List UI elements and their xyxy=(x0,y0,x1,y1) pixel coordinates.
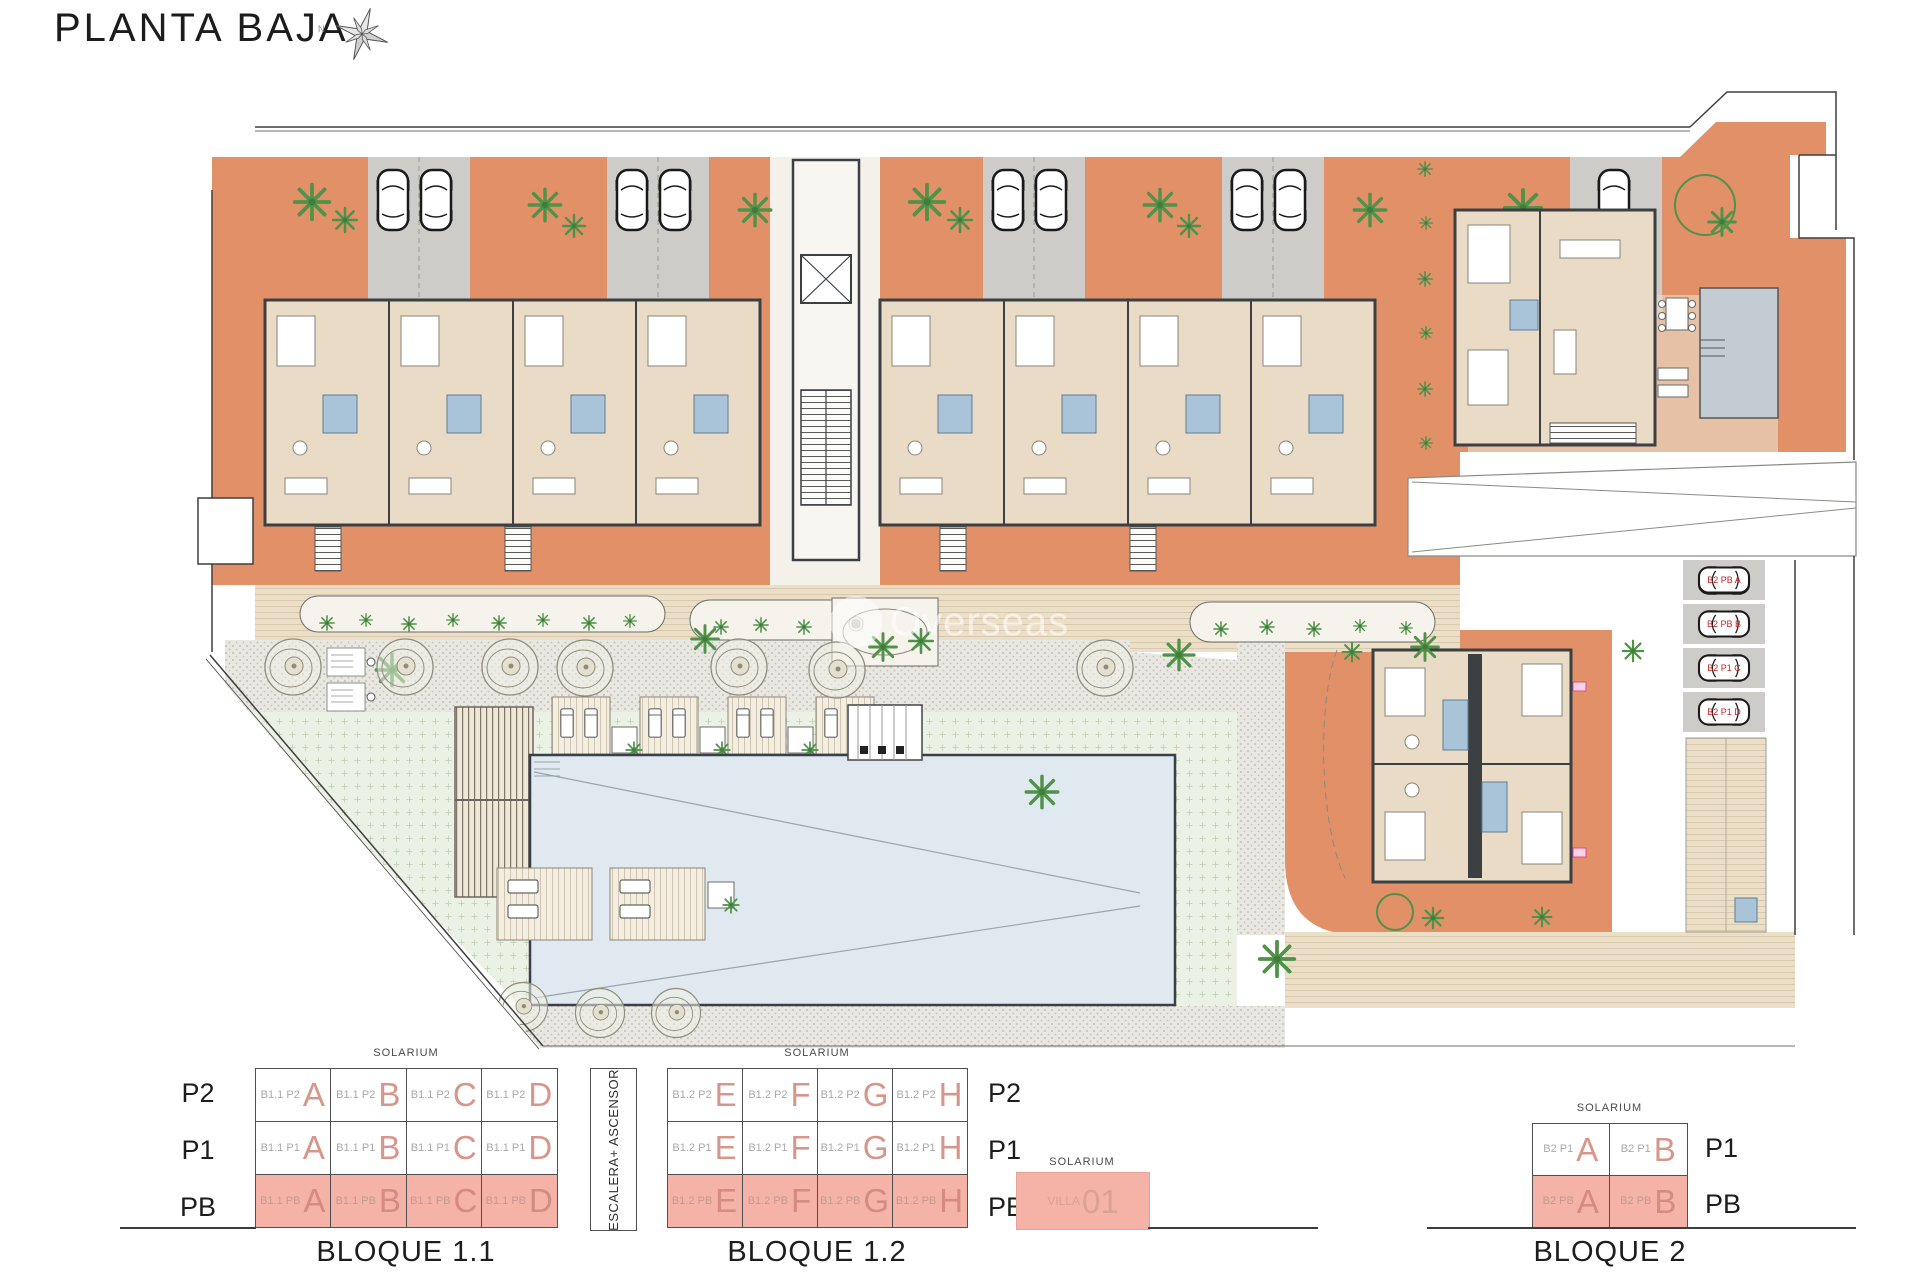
unit-letter: B xyxy=(378,1131,400,1164)
unit-letter: G xyxy=(863,1078,889,1111)
unit-cell-B1.1-PB-B: B1.1 PBB xyxy=(330,1174,407,1228)
unit-letter: H xyxy=(939,1184,963,1217)
ground-line-mid xyxy=(1148,1227,1318,1229)
unit-letter: E xyxy=(715,1131,737,1164)
unit-cell-B1.1-P2-C: B1.1 P2C xyxy=(406,1068,483,1122)
unit-cell-B1.1-PB-A: B1.1 PBA xyxy=(255,1174,332,1228)
unit-prefix: B1.1 PB xyxy=(260,1195,300,1207)
bloque-1-2-name: BLOQUE 1.2 xyxy=(667,1236,967,1269)
unit-prefix: B1.2 P2 xyxy=(821,1089,860,1101)
unit-prefix: B1.2 P1 xyxy=(672,1142,711,1154)
villa-number: 01 xyxy=(1082,1185,1119,1218)
unit-prefix: B1.2 PB xyxy=(896,1195,936,1207)
bloque-1-1-grid: B1.1 P2AB1.1 P2BB1.1 P2CB1.1 P2DB1.1 P1A… xyxy=(255,1068,557,1227)
bloque-1-2-grid: B1.2 P2EB1.2 P2FB1.2 P2GB1.2 P2HB1.2 P1E… xyxy=(667,1068,967,1227)
unit-letter: B xyxy=(378,1078,400,1111)
unit-cell-B1.2-P2-E: B1.2 P2E xyxy=(667,1068,743,1122)
svg-text:B2 P1 C: B2 P1 C xyxy=(1707,663,1741,673)
unit-letter: F xyxy=(791,1184,811,1217)
unit-letter: D xyxy=(529,1184,553,1217)
unit-cell-B1.2-P1-G: B1.2 P1G xyxy=(817,1121,893,1175)
unit-letter: G xyxy=(863,1131,889,1164)
unit-cell-B1.2-P1-H: B1.2 P1H xyxy=(892,1121,968,1175)
unit-letter: C xyxy=(454,1184,478,1217)
unit-letter: C xyxy=(453,1078,477,1111)
unit-letter: B xyxy=(379,1184,401,1217)
unit-letter: G xyxy=(863,1184,889,1217)
unit-cell-B1.1-P1-C: B1.1 P1C xyxy=(406,1121,483,1175)
bloque-2-grid: B2 P1AB2 P1BB2 PBAB2 PBB xyxy=(1532,1123,1687,1227)
unit-letter: C xyxy=(453,1131,477,1164)
unit-prefix: B1.2 PB xyxy=(820,1195,860,1207)
unit-cell-B1.2-PB-F: B1.2 PBF xyxy=(742,1174,818,1228)
floor-label-P2: P2 xyxy=(988,1078,1048,1109)
unit-cell-B1.1-PB-D: B1.1 PBD xyxy=(481,1174,558,1228)
svg-text:B2 PB B: B2 PB B xyxy=(1707,619,1741,629)
unit-prefix: B1.1 P1 xyxy=(336,1142,375,1154)
unit-prefix: B1.1 P1 xyxy=(261,1142,300,1154)
unit-letter: D xyxy=(528,1131,552,1164)
ground-line-right xyxy=(1427,1227,1856,1229)
compass-icon: N xyxy=(310,2,400,66)
bloque-2-name: BLOQUE 2 xyxy=(1490,1236,1730,1269)
stairs-elevator-box: ESCALERA+ ASCENSOR xyxy=(590,1068,637,1231)
unit-letter: B xyxy=(1654,1133,1676,1166)
unit-prefix: B1.2 P1 xyxy=(897,1142,936,1154)
unit-cell-B2-PB-A: B2 PBA xyxy=(1532,1175,1611,1228)
floor-label-P2: P2 xyxy=(168,1078,228,1109)
unit-cell-B1.1-P1-B: B1.1 P1B xyxy=(330,1121,407,1175)
unit-letter: H xyxy=(939,1131,963,1164)
unit-prefix: B1.1 PB xyxy=(486,1195,526,1207)
stair-elevator-core xyxy=(793,160,859,560)
unit-letter: A xyxy=(1577,1185,1599,1218)
unit-prefix: B1.1 P2 xyxy=(486,1089,525,1101)
bloque-1-1-name: BLOQUE 1.1 xyxy=(255,1236,557,1269)
unit-prefix: B1.2 PB xyxy=(672,1195,712,1207)
unit-prefix: B1.1 PB xyxy=(410,1195,450,1207)
unit-cell-B1.2-P1-E: B1.2 P1E xyxy=(667,1121,743,1175)
unit-prefix: B2 P1 xyxy=(1621,1143,1651,1155)
unit-cell-B1.2-PB-E: B1.2 PBE xyxy=(667,1174,743,1228)
unit-letter: A xyxy=(1576,1133,1598,1166)
unit-prefix: B1.2 PB xyxy=(748,1195,788,1207)
unit-cell-B1.2-P2-F: B1.2 P2F xyxy=(742,1068,818,1122)
unit-cell-B1.2-PB-G: B1.2 PBG xyxy=(817,1174,893,1228)
stairs-elevator-label: ESCALERA+ ASCENSOR xyxy=(606,1069,621,1231)
floor-labels-left: P2P1PB xyxy=(168,1078,228,1223)
villa-label: VILLA xyxy=(1047,1194,1080,1208)
unit-letter: H xyxy=(939,1078,963,1111)
unit-cell-B1.1-P2-B: B1.1 P2B xyxy=(330,1068,407,1122)
unit-cell-B1.2-P2-G: B1.2 P2G xyxy=(817,1068,893,1122)
site-plan: B2 PB A B2 PB B B2 P1 C B2 P1 D xyxy=(0,0,1920,1060)
driveway-ramp xyxy=(1408,462,1856,556)
page-title: PLANTA BAJA xyxy=(54,6,349,51)
solarium-label-bloque-1-2: SOLARIUM xyxy=(667,1047,967,1059)
unit-letter: E xyxy=(715,1078,737,1111)
unit-prefix: B2 PB xyxy=(1620,1195,1651,1207)
unit-prefix: B1.2 P1 xyxy=(748,1142,787,1154)
unit-letter: F xyxy=(790,1078,810,1111)
unit-cell-B1.2-PB-H: B1.2 PBH xyxy=(892,1174,968,1228)
unit-cell-B2-P1-B: B2 P1B xyxy=(1609,1123,1688,1176)
unit-cell-B1.2-P2-H: B1.2 P2H xyxy=(892,1068,968,1122)
unit-letter: A xyxy=(303,1184,325,1217)
unit-letter: A xyxy=(303,1078,325,1111)
unit-cell-B1.1-P1-A: B1.1 P1A xyxy=(255,1121,332,1175)
unit-prefix: B2 PB xyxy=(1543,1195,1574,1207)
solarium-label-bloque-2: SOLARIUM xyxy=(1532,1102,1687,1114)
unit-cell-B1.1-PB-C: B1.1 PBC xyxy=(406,1174,483,1228)
unit-prefix: B1.2 P2 xyxy=(748,1089,787,1101)
unit-cell-B2-PB-B: B2 PBB xyxy=(1609,1175,1688,1228)
unit-prefix: B1.1 P2 xyxy=(411,1089,450,1101)
unit-prefix: B1.1 P2 xyxy=(336,1089,375,1101)
unit-prefix: B1.2 P2 xyxy=(897,1089,936,1101)
unit-prefix: B1.1 P1 xyxy=(486,1142,525,1154)
unit-cell-B1.1-P2-D: B1.1 P2D xyxy=(481,1068,558,1122)
ground-line-left xyxy=(120,1227,256,1229)
svg-text:B2 PB A: B2 PB A xyxy=(1707,575,1741,585)
solarium-label-bloque-1-1: SOLARIUM xyxy=(255,1047,557,1059)
unit-cell-B1.2-P1-F: B1.2 P1F xyxy=(742,1121,818,1175)
unit-letter: B xyxy=(1654,1185,1676,1218)
villa-01-box: VILLA 01 xyxy=(1016,1172,1150,1230)
compass-north-label: N xyxy=(318,24,325,34)
unit-prefix: B1.2 P1 xyxy=(821,1142,860,1154)
svg-text:B2 P1 D: B2 P1 D xyxy=(1707,707,1741,717)
unit-letter: D xyxy=(528,1078,552,1111)
solarium-label-villa: SOLARIUM xyxy=(1016,1156,1148,1168)
unit-prefix: B2 P1 xyxy=(1543,1143,1573,1155)
unit-cell-B1.1-P2-A: B1.1 P2A xyxy=(255,1068,332,1122)
unit-cell-B1.1-P1-D: B1.1 P1D xyxy=(481,1121,558,1175)
floor-label-P1: P1 xyxy=(1705,1133,1765,1164)
floor-labels-right: P1PB xyxy=(1705,1133,1765,1220)
floor-label-P1: P1 xyxy=(168,1135,228,1166)
floor-label-PB: PB xyxy=(168,1192,228,1223)
right-parking-bays: B2 PB A B2 PB B B2 P1 C B2 P1 D xyxy=(1683,560,1766,932)
unit-prefix: B1.1 PB xyxy=(336,1195,376,1207)
unit-prefix: B1.2 P2 xyxy=(672,1089,711,1101)
unit-prefix: B1.1 P1 xyxy=(411,1142,450,1154)
floor-label-PB: PB xyxy=(1705,1189,1765,1220)
unit-prefix: B1.1 P2 xyxy=(261,1089,300,1101)
floor-plan-sheet: B2 PB A B2 PB B B2 P1 C B2 P1 D xyxy=(0,0,1920,1280)
unit-cell-B2-P1-A: B2 P1A xyxy=(1532,1123,1611,1176)
unit-letter: F xyxy=(790,1131,810,1164)
unit-letter: E xyxy=(715,1184,737,1217)
unit-letter: A xyxy=(303,1131,325,1164)
